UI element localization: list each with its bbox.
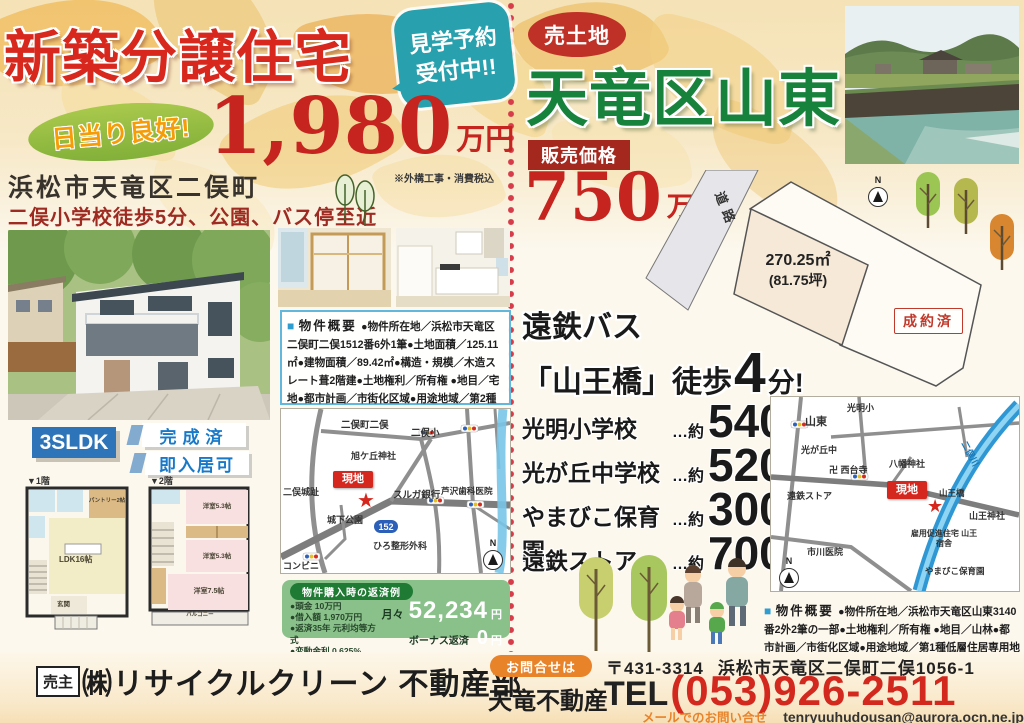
map-label-town: 二俣町二俣 (341, 417, 389, 431)
distance-approx: …約 (672, 506, 708, 530)
plot-area-label: 270.25㎡ (81.75坪) (738, 246, 858, 290)
overview-heading: 物件概要 (299, 319, 357, 333)
tree-icon (990, 214, 1014, 270)
floor-plan-1f: ▼1階 LDK16帖 パントリー2帖 玄関 (25, 474, 135, 636)
distance-approx: …約 (672, 418, 708, 442)
map-label-hospital: 市川医院 (807, 545, 843, 558)
map-label-shrine2: 山王神社 (969, 509, 1005, 522)
map-label-school: 二俣小 (411, 425, 440, 439)
tree-icon (916, 172, 940, 228)
site-star-icon: ★ (357, 491, 375, 511)
room-label-bedroom1: 洋室5.3帖 (186, 500, 248, 510)
site-badge: 現地 (887, 481, 927, 499)
bonus-unit: 円 (491, 632, 502, 648)
compass-icon: N (483, 539, 503, 570)
room-label-pantry: パントリー2帖 (85, 496, 129, 504)
distance-name: 光明小学校 (522, 410, 672, 444)
map-label-store: 遠鉄ストア (787, 489, 832, 502)
bus-line2: 「山王橋」徒歩 (522, 357, 732, 401)
room-label-balcony: バルコニー (152, 610, 248, 618)
room-label-genkan: 玄関 (57, 598, 70, 608)
map-label-shrine: 八幡神社 (889, 457, 925, 470)
map-label-park: 城下公園 (327, 513, 363, 526)
bonus-value: 0 (477, 627, 488, 650)
price-unit: 万円 (456, 116, 514, 158)
room-label-bedroom2: 洋室5.3帖 (186, 550, 248, 560)
property-highlights: 二俣小学校徒歩5分、公園、バス停至近 (8, 201, 377, 230)
compass-n: N (490, 538, 497, 548)
distance-row: 光明小学校 …約 540 m (522, 398, 805, 444)
seller-label-box: 売主 (36, 666, 80, 697)
contact-badge-label: お問合せは (506, 657, 576, 676)
status-badge-move-in: 即入居可 (145, 451, 249, 475)
bonus-label: ボーナス返済 (409, 632, 469, 647)
neighborhood-map-futamata: 二俣町二俣 二俣小 旭ケ丘神社 現地 ★ 二俣城趾 スルガ銀行 芦沢歯科医院 城… (280, 408, 511, 574)
compass-n: N (786, 556, 793, 566)
loan-item: ●返済35年 元利均等方式 (290, 623, 382, 645)
site-badge: 現地 (333, 471, 373, 488)
agency-name: 天竜不動産 (488, 681, 608, 716)
neighborhood-map-santo: 山東 光明小 光が丘中 八幡神社 遠鉄ストア 卍 西台寺 二俣川 山王橋 現地 … (770, 396, 1020, 592)
map-label-castle: 二俣城趾 (283, 485, 319, 498)
status-badge-completed: 完成済 (142, 423, 246, 447)
map-label-housing: 雇用促進住宅 山王宿舎 (909, 529, 979, 548)
plot-area-tsubo: (81.75坪) (738, 270, 858, 290)
tree-decoration (333, 174, 377, 226)
seller-name: ㈱リサイクルクリーン 不動産部 (82, 659, 522, 703)
monthly-value: 52,234 (409, 597, 488, 625)
room-label-bedroom3: 洋室7.5帖 (170, 586, 248, 596)
plot-area-m2: 270.25㎡ (738, 246, 858, 270)
mail-label: メールでのお問い合せは (642, 707, 775, 723)
real-estate-flyer: 新築分譲住宅 見学予約 受付中!! 日当り良好! 1,980 万円 ※外構工事・… (0, 0, 1024, 723)
tel-number: (053)926-2511 (670, 670, 956, 712)
map-label-junior: 光が丘中 (801, 443, 837, 456)
property-address: 浜松市天竜区二俣町 (8, 168, 260, 204)
monthly-unit: 円 (491, 606, 502, 622)
overview-marker: ■ (764, 604, 771, 618)
floor-plan-2f: ▼2階 洋室5.3帖 洋室5.3帖 洋室7.5帖 バルコニー (148, 474, 256, 636)
interior-kitchen-photo (396, 228, 510, 307)
map-label-nursery: やまびこ保育園 (925, 565, 985, 577)
loan-items: ●頭金 10万円 ●借入額 1,970万円 ●返済35年 元利均等方式 ●変動金… (290, 601, 382, 657)
mail-line: メールでのお問い合せは tenryuuhudousan@aurora.ocn.n… (642, 707, 1024, 723)
sold-badge: 成約済 (894, 308, 963, 334)
distance-row: 光が丘中学校 …約 520 m (522, 442, 805, 488)
family-illustration (565, 555, 780, 655)
map-label-area: 山東 (805, 413, 827, 429)
route-152-shield: 152 (373, 519, 399, 534)
compass-icon: N (779, 557, 799, 588)
bus-minutes: 4 (734, 348, 766, 399)
interior-room-photo (278, 228, 391, 307)
bus-access-block: 遠鉄バス 「山王橋」徒歩 4 分! (522, 302, 804, 401)
landscape-photo (845, 6, 1019, 164)
map-label-elementary: 光明小 (847, 401, 874, 414)
overview-marker: ■ (287, 319, 294, 333)
compass-n: N (875, 175, 882, 185)
loan-example-box: 物件購入時の返済例 ●頭金 10万円 ●借入額 1,970万円 ●返済35年 元… (282, 580, 510, 638)
map-label-shrine: 旭ケ丘神社 (351, 449, 396, 462)
site-star-icon: ★ (927, 497, 943, 515)
house-exterior-photo (8, 230, 270, 420)
mail-address: tenryuuhudousan@aurora.ocn.ne.jp (783, 709, 1024, 723)
overview-heading: 物件概要 (776, 604, 834, 618)
loan-item: ●借入額 1,970万円 (290, 612, 382, 623)
loan-item: ●頭金 10万円 (290, 601, 382, 612)
monthly-label: 月々 (382, 606, 404, 622)
price-note: ※外構工事・消費税込 (394, 170, 494, 185)
map-label-bank: スルガ銀行 (393, 487, 440, 501)
bus-line1: 遠鉄バス (522, 302, 804, 346)
contact-badge: お問合せは (490, 655, 592, 677)
plan-badge-3sldk: 3SLDK (32, 427, 116, 458)
price-value: 1,980 (208, 90, 452, 164)
price-left: 1,980 万円 (208, 90, 514, 164)
compass-icon: N (868, 176, 888, 207)
map-label-dental: 芦沢歯科医院 (441, 485, 493, 497)
property-overview-house: ■ 物件概要 ●物件所在地／浜松市天竜区二俣町二俣1512番6外1筆●土地面積／… (280, 310, 511, 405)
room-label-ldk: LDK16帖 (59, 554, 92, 565)
land-sale-label: 売土地 (544, 20, 610, 50)
distance-name: 光が丘中学校 (522, 454, 672, 488)
tree-icon (954, 178, 978, 234)
map-label-temple: 卍 西台寺 (829, 463, 868, 476)
map-label-store: コンビニ (283, 559, 319, 572)
distance-approx: …約 (672, 462, 708, 486)
sunny-badge-label: 日当り良好! (50, 108, 192, 156)
map-label-clinic: ひろ整形外科 (373, 539, 427, 552)
land-title: 天竜区山東 (526, 48, 841, 138)
